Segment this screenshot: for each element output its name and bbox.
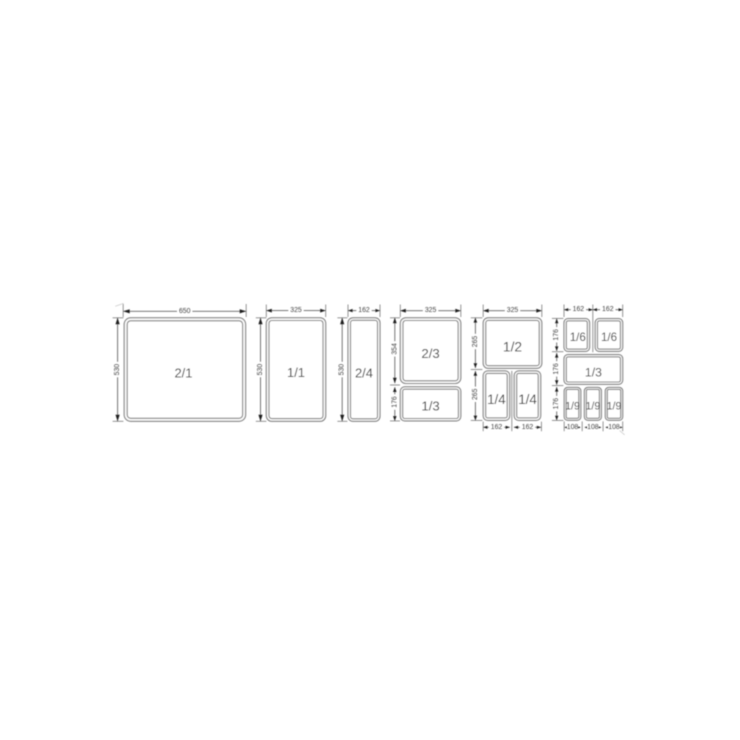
svg-text:325: 325 [507,307,519,314]
svg-text:108: 108 [587,424,599,431]
svg-text:108: 108 [567,424,579,431]
svg-text:1/9: 1/9 [565,400,580,412]
svg-text:162: 162 [573,306,585,313]
svg-text:162: 162 [491,424,503,431]
svg-text:1/4: 1/4 [518,392,537,407]
svg-text:162: 162 [602,306,614,313]
svg-text:1/6: 1/6 [601,331,617,344]
svg-text:176: 176 [553,363,560,375]
svg-text:162: 162 [358,307,370,314]
svg-text:325: 325 [425,307,437,314]
svg-text:325: 325 [290,307,302,314]
svg-text:1/3: 1/3 [585,366,602,380]
svg-text:176: 176 [553,398,560,410]
svg-text:1/9: 1/9 [586,400,601,412]
svg-text:2/4: 2/4 [355,365,373,380]
svg-text:265: 265 [472,336,479,348]
svg-text:176: 176 [391,396,398,408]
svg-text:1/4: 1/4 [487,392,506,407]
svg-text:2/3: 2/3 [421,346,439,361]
svg-text:1/9: 1/9 [607,400,622,412]
svg-text:265: 265 [472,388,479,400]
svg-text:1/1: 1/1 [287,365,305,380]
svg-text:1/6: 1/6 [570,331,586,344]
svg-text:162: 162 [522,424,534,431]
svg-text:2/1: 2/1 [174,366,192,381]
svg-text:530: 530 [339,364,346,376]
svg-text:354: 354 [391,343,398,355]
svg-text:650: 650 [179,308,191,315]
svg-text:1/2: 1/2 [503,340,522,355]
svg-text:1/3: 1/3 [421,398,439,413]
svg-text:108: 108 [608,424,620,431]
svg-text:176: 176 [553,329,560,341]
svg-text:530: 530 [114,364,121,376]
svg-text:530: 530 [257,364,264,376]
